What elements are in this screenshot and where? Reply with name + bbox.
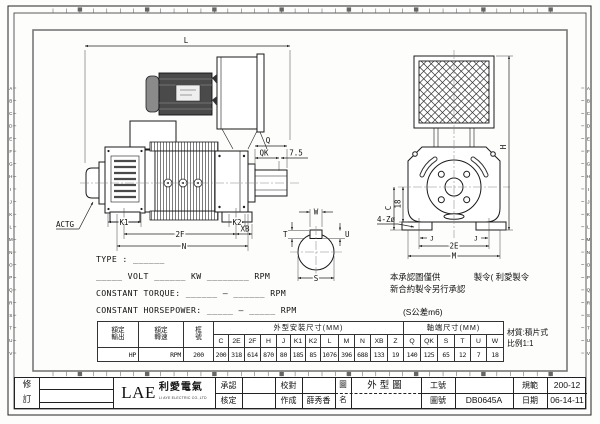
end-foot-right — [476, 222, 506, 230]
svg-text:D: D — [9, 124, 13, 129]
dim-label-7-5: 7.5 — [289, 149, 303, 158]
logo-sub-text: LI AYE ELECTRIC CO.,LTD — [159, 393, 207, 403]
svg-text:M: M — [9, 237, 13, 242]
type-line: TYPE : ______ — [96, 254, 165, 264]
tolerance-note: (S公差m6) — [403, 307, 443, 317]
svg-text:D: D — [587, 124, 591, 129]
date-label: 日期 — [513, 393, 547, 408]
svg-text:N: N — [587, 250, 590, 255]
svg-text:B: B — [587, 98, 590, 103]
company-logo: LAE 利愛電氣 LI AYE ELECTRIC CO.,LTD — [113, 378, 215, 407]
dim-value: 133 — [371, 348, 388, 362]
dim-header: C — [214, 335, 229, 348]
rated-speed-header: 額定轉速 — [139, 322, 184, 348]
svg-text:A: A — [9, 86, 13, 91]
approve-label: 承認 — [215, 378, 242, 393]
horsepower-line: CONSTANT HORSEPOWER: _____ — _____ RPM — [96, 305, 297, 315]
dim-value: 125 — [421, 348, 438, 362]
dim-header: 2F — [245, 335, 261, 348]
svg-text:R: R — [9, 300, 13, 305]
svg-text:G: G — [587, 162, 591, 167]
blower-housing — [217, 54, 267, 149]
drawing-sheet: AABBCCDDEEFFGGHHIIJJKKLLMMNNOOPPQQRRSSTT… — [0, 0, 600, 424]
dim-label-XB: XB — [240, 225, 250, 234]
svg-text:H: H — [9, 174, 12, 179]
logo-cn-text: 利愛電氣 — [159, 383, 207, 393]
dim-label-L: L — [184, 36, 189, 45]
date-value: 06-14-11 — [547, 393, 587, 408]
dim-header: W — [487, 335, 504, 348]
blower-nameplate — [176, 85, 200, 101]
svg-text:L: L — [10, 225, 13, 230]
svg-text:N: N — [9, 250, 12, 255]
revision-label-1: 修 — [15, 377, 39, 392]
dim-label-Q: Q — [266, 136, 271, 145]
dim-header: L — [321, 335, 339, 348]
svg-text:P: P — [9, 275, 12, 280]
dim-label-H: H — [499, 144, 508, 149]
hole-callout: 4-Zø — [377, 215, 396, 224]
svg-text:O: O — [9, 262, 13, 267]
dim-label-M: M — [452, 252, 457, 261]
dim-header: M — [339, 335, 355, 348]
svg-text:T: T — [587, 326, 590, 331]
approve-value — [242, 378, 275, 393]
dim-label-W: W — [314, 208, 319, 217]
svg-text:Q: Q — [587, 288, 591, 293]
dim-value: 7 — [471, 348, 487, 362]
dim-value: 185 — [291, 348, 306, 362]
louvers — [114, 161, 136, 197]
note-line-1: 本承認圖僅供 製令( 利愛製令 — [390, 272, 530, 282]
frame-no-header: 框號 — [184, 322, 214, 348]
dim-value: 12 — [455, 348, 471, 362]
dim-value: 688 — [355, 348, 371, 362]
dim-header: H — [261, 335, 277, 348]
svg-text:I: I — [588, 187, 589, 192]
volt-line: _____ VOLT ______ KW ________ RPM — [96, 271, 270, 281]
check-value — [242, 393, 275, 408]
svg-text:K: K — [587, 212, 591, 217]
dim-label-U: U — [345, 230, 350, 239]
spec-value: 200-12 — [547, 378, 587, 393]
approval-notes: 本承認圖僅供 製令( 利愛製令 新合約製令另行承認 (S公差m6) — [390, 272, 530, 317]
svg-text:J: J — [587, 199, 589, 204]
title-block: 修 訂 LAE 利愛電氣 LI AYE ELECTRIC CO.,LTD 承認 … — [14, 377, 586, 409]
svg-text:S: S — [587, 313, 590, 318]
dim-value: 396 — [339, 348, 355, 362]
dim-header: N — [355, 335, 371, 348]
scale-text: 比例1:1 — [507, 338, 548, 349]
svg-text:K: K — [9, 212, 13, 217]
outline-dims-header: 外型安裝尺寸(MM) — [214, 322, 404, 335]
note-line-2: 新合約製令另行承認 — [390, 284, 466, 294]
svg-text:M: M — [586, 237, 590, 242]
drawing-name: 外型圖 — [351, 378, 421, 393]
svg-text:U: U — [587, 338, 590, 343]
proof-value — [302, 378, 335, 393]
dim-header: QK — [421, 335, 438, 348]
proof-label: 校對 — [275, 378, 302, 393]
end-view: H C 18 4-Zø J J 2E M — [377, 50, 513, 261]
dim-value: 18 — [487, 348, 504, 362]
dim-value: 200 — [214, 348, 229, 362]
speed-unit: RPM — [139, 348, 184, 362]
material-note: 材質:積片式 比例1:1 — [507, 327, 548, 349]
svg-text:Q: Q — [9, 288, 13, 293]
svg-text:A: A — [587, 86, 591, 91]
material-text: 材質:積片式 — [507, 327, 548, 338]
svg-text:U: U — [9, 338, 12, 343]
dim-value: 614 — [245, 348, 261, 362]
svg-text:O: O — [587, 262, 591, 267]
svg-text:G: G — [9, 162, 13, 167]
spec-lines: TYPE : ______ _____ VOLT ______ KW _____… — [96, 254, 297, 315]
dim-label-QK: QK — [259, 149, 269, 158]
svg-text:T: T — [9, 326, 12, 331]
logo-text: LAE — [121, 383, 156, 403]
dim-header: K2 — [306, 335, 321, 348]
svg-text:C: C — [587, 111, 591, 116]
svg-text:P: P — [587, 275, 590, 280]
dim-value: 140 — [404, 348, 421, 362]
dim-value: 19 — [388, 348, 404, 362]
torque-line: CONSTANT TORQUE: ______ — ______ RPM — [96, 288, 286, 298]
shaft-dims-header: 軸端尺寸(MM) — [404, 322, 504, 335]
svg-text:B: B — [9, 98, 12, 103]
output-unit: HP — [98, 348, 139, 362]
side-view: L — [56, 36, 308, 251]
rated-output-header: 額定輸出 — [98, 322, 139, 348]
dim-value: 85 — [306, 348, 321, 362]
work-no-value — [455, 378, 513, 393]
drawing-no-label: 圖號 — [421, 393, 455, 408]
svg-text:C: C — [9, 111, 13, 116]
dim-value: 65 — [438, 348, 455, 362]
dim-value-row: HP RPM 200 200 318 614 870 80 185 85 107… — [98, 348, 504, 362]
svg-text:J: J — [10, 199, 12, 204]
motor-body-side — [86, 142, 287, 225]
dim-header: S — [438, 335, 455, 348]
check-label: 核定 — [215, 393, 242, 408]
svg-text:F: F — [587, 149, 590, 154]
revision-label-2: 訂 — [15, 392, 39, 407]
dim-value: 1076 — [321, 348, 339, 362]
made-label: 作成 — [275, 393, 302, 408]
dim-value: 318 — [229, 348, 245, 362]
dim-header: K1 — [291, 335, 306, 348]
actg-label: ACTG — [56, 220, 75, 229]
drawing-name-label-2: 名 — [335, 392, 351, 407]
blower-motor — [146, 73, 217, 115]
dim-header: Q — [404, 335, 421, 348]
svg-text:E: E — [587, 136, 590, 141]
dim-label-2F: 2F — [175, 230, 185, 239]
svg-text:S: S — [9, 313, 12, 318]
drawing-name-label-1: 圖 — [335, 377, 351, 392]
dim-label-J-right: J — [474, 235, 478, 243]
dim-header: 2E — [229, 335, 245, 348]
dim-label-2E: 2E — [449, 242, 459, 251]
work-no-label: 工號 — [421, 378, 455, 393]
dim-label-T: T — [283, 230, 288, 239]
svg-text:I: I — [10, 187, 11, 192]
dim-value: 870 — [261, 348, 277, 362]
shaft-end-view: W T U S — [283, 208, 350, 284]
dim-header: XB — [371, 335, 388, 348]
svg-text:F: F — [9, 149, 12, 154]
frame-value: 200 — [184, 348, 214, 362]
dim-header: J — [277, 335, 291, 348]
dim-label-J-left: J — [430, 235, 434, 243]
dim-header: Z — [388, 335, 404, 348]
svg-text:L: L — [587, 225, 590, 230]
dimension-table: 額定輸出 額定轉速 框號 外型安裝尺寸(MM) 軸端尺寸(MM) C 2E 2F… — [97, 321, 504, 362]
svg-text:V: V — [587, 351, 591, 356]
dim-label-18: 18 — [394, 199, 403, 209]
made-value: 薛秀香 — [302, 393, 335, 408]
dim-label-C: C — [384, 206, 393, 211]
dim-label-N: N — [182, 242, 187, 251]
end-foot-left — [402, 222, 432, 230]
dim-value: 80 — [277, 348, 291, 362]
svg-text:E: E — [9, 136, 12, 141]
svg-text:V: V — [9, 351, 13, 356]
drawing-no-value: DB0645A — [455, 393, 513, 408]
dim-header: U — [471, 335, 487, 348]
dim-header: T — [455, 335, 471, 348]
spec-label: 規範 — [513, 378, 547, 393]
svg-text:H: H — [587, 174, 590, 179]
dim-label-S: S — [314, 274, 319, 283]
svg-text:R: R — [587, 300, 591, 305]
